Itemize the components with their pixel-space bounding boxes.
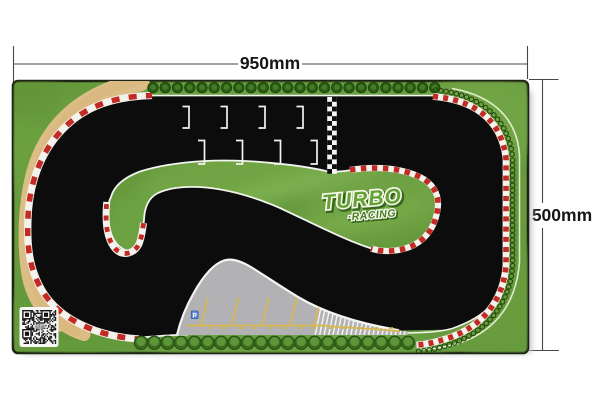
svg-text:950mm: 950mm (240, 53, 300, 73)
svg-text:500mm: 500mm (532, 205, 592, 225)
svg-text:P: P (193, 312, 197, 319)
